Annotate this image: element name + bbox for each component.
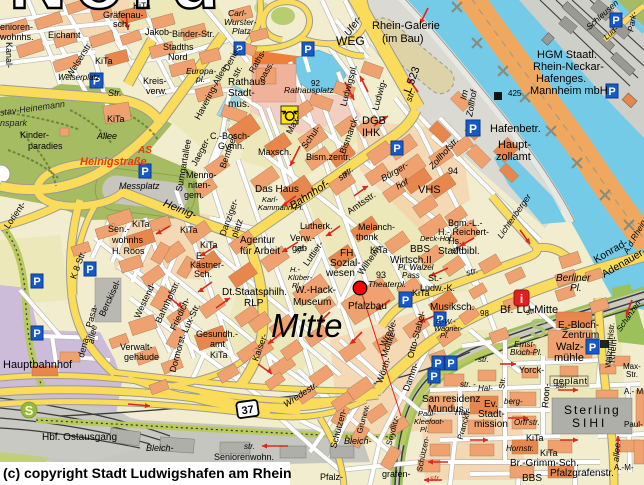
svg-text:zollamt: zollamt — [496, 151, 531, 163]
svg-text:nspark: nspark — [0, 118, 28, 128]
svg-text:Jakob-: Jakob- — [145, 27, 172, 37]
svg-text:A.- M.-: A.- M.- — [624, 387, 644, 396]
svg-text:Eichamt: Eichamt — [48, 30, 81, 40]
svg-text:425: 425 — [508, 89, 522, 98]
svg-text:VHS: VHS — [418, 184, 441, 196]
svg-text:Pfalzbau: Pfalzbau — [348, 301, 387, 312]
svg-text:pl.: pl. — [195, 74, 205, 84]
svg-text:Paul-: Paul- — [624, 420, 643, 429]
svg-text:str.: str. — [478, 355, 489, 364]
svg-text:KiTa: KiTa — [412, 288, 430, 298]
svg-text:Roon-: Roon- — [540, 383, 552, 408]
svg-text:94: 94 — [448, 166, 458, 176]
svg-text:Sen.-: Sen.- — [108, 224, 130, 234]
svg-text:S: S — [25, 403, 34, 418]
svg-text:P: P — [430, 371, 437, 383]
svg-text:Pfalz-: Pfalz- — [320, 472, 343, 482]
svg-text:allee: allee — [611, 442, 623, 462]
svg-text:(im Bau): (im Bau) — [382, 33, 424, 45]
svg-text:Mannheim mbH: Mannheim mbH — [530, 85, 608, 97]
svg-text:KiTa: KiTa — [132, 219, 150, 229]
svg-text:P: P — [304, 44, 311, 56]
svg-text:P: P — [469, 122, 477, 136]
svg-text:Hbf. Ostausgang: Hbf. Ostausgang — [42, 432, 117, 443]
svg-text:Hornstr.: Hornstr. — [506, 444, 534, 453]
svg-text:Das Haus: Das Haus — [255, 184, 299, 195]
svg-text:Hal-: Hal- — [478, 384, 493, 393]
svg-text:Musiksch.: Musiksch. — [430, 302, 474, 313]
svg-text:St.-: St.- — [428, 273, 442, 283]
svg-text:P: P — [86, 264, 93, 276]
svg-text:BBS: BBS — [410, 244, 430, 255]
svg-text:Menno-: Menno- — [186, 170, 217, 180]
svg-text:Kreis-: Kreis- — [143, 76, 167, 86]
svg-text:paradies: paradies — [28, 141, 63, 151]
svg-text:mühle: mühle — [554, 352, 584, 364]
svg-text:sch.: sch. — [113, 19, 130, 29]
svg-text:Allee: Allee — [96, 131, 117, 141]
svg-text:Messplatz: Messplatz — [119, 181, 160, 191]
svg-text:Bloch-Pl.: Bloch-Pl. — [510, 348, 542, 357]
svg-text:W.-Hack-: W.-Hack- — [295, 285, 336, 296]
svg-text:Str.: Str. — [497, 377, 507, 390]
svg-text:KiTa: KiTa — [107, 114, 125, 124]
svg-text:Gesundh.-: Gesundh.- — [196, 329, 238, 339]
svg-text:Zentrum: Zentrum — [562, 330, 599, 341]
svg-text:P: P — [589, 342, 596, 354]
svg-text:mus.: mus. — [228, 99, 250, 110]
svg-text:str.: str. — [244, 442, 255, 451]
svg-text:Orff'str.: Orff'str. — [514, 418, 540, 427]
svg-text:Heinigstraße: Heinigstraße — [80, 156, 147, 168]
svg-text:mission: mission — [474, 419, 508, 430]
svg-text:niten-: niten- — [188, 180, 211, 190]
svg-text:KiTa: KiTa — [180, 225, 198, 235]
svg-text:Pl.: Pl. — [420, 425, 429, 434]
svg-text:P: P — [33, 276, 40, 288]
svg-text:P: P — [434, 358, 441, 370]
svg-text:Melanch-: Melanch- — [358, 222, 395, 232]
svg-text:gem.: gem. — [184, 190, 204, 200]
svg-text:Pass: Pass — [402, 271, 420, 280]
svg-text:Platz: Platz — [232, 26, 252, 36]
svg-text:Sterling: Sterling — [564, 403, 621, 417]
svg-text:P: P — [447, 358, 454, 370]
svg-text:Stadths: Stadths — [163, 42, 194, 52]
svg-text:Rathaus: Rathaus — [228, 77, 265, 88]
svg-text:Binder-Str.: Binder-Str. — [172, 29, 215, 39]
svg-text:wohnhs.: wohnhs. — [0, 32, 34, 42]
svg-text:Hafenbetr.: Hafenbetr. — [490, 123, 541, 135]
svg-text:Str.: Str. — [626, 370, 638, 379]
svg-text:AS: AS — [137, 145, 152, 156]
svg-text:Museum: Museum — [293, 297, 331, 308]
svg-text:Stadt-: Stadt- — [228, 88, 255, 99]
svg-text:H. Roos: H. Roos — [112, 246, 145, 256]
svg-text:Kleefoot-: Kleefoot- — [414, 417, 445, 426]
svg-text:Kanal-: Kanal- — [4, 42, 14, 68]
svg-text:KiTa: KiTa — [210, 350, 228, 360]
svg-text:Lutherk.: Lutherk. — [300, 221, 333, 231]
svg-text:für Arbeit: für Arbeit — [240, 246, 280, 257]
svg-text:P: P — [608, 86, 615, 98]
svg-text:KiTa: KiTa — [200, 240, 218, 250]
svg-text:Hal-: Hal- — [455, 408, 470, 417]
svg-text:enioren-: enioren- — [0, 22, 33, 32]
svg-text:P: P — [33, 328, 40, 340]
svg-text:Pl.: Pl. — [440, 331, 449, 340]
svg-text:Welserplatz: Welserplatz — [58, 73, 100, 82]
svg-text:Pfalzgrafenstr.: Pfalzgrafenstr. — [550, 468, 614, 479]
svg-text:Pl.: Pl. — [570, 283, 582, 294]
svg-text:IHK: IHK — [362, 127, 381, 139]
svg-text:Rathausplatz: Rathausplatz — [284, 85, 334, 95]
svg-text:Bleich-: Bleich- — [146, 443, 174, 453]
svg-text:37: 37 — [241, 404, 255, 418]
svg-text:92: 92 — [311, 79, 320, 88]
svg-text:gehäude: gehäude — [124, 352, 159, 362]
svg-text:H.- Reichert-: H.- Reichert- — [438, 227, 489, 237]
svg-text:thonk: thonk — [356, 232, 379, 242]
svg-text:wohnhs: wohnhs — [111, 235, 144, 245]
svg-text:S: S — [529, 313, 546, 343]
svg-text:Maxsch.: Maxsch. — [258, 147, 292, 157]
svg-text:Yorck-: Yorck- — [519, 365, 544, 375]
svg-text:Kinder-: Kinder- — [20, 130, 49, 140]
svg-text:Rhein-Galerie: Rhein-Galerie — [372, 20, 440, 32]
svg-text:98: 98 — [480, 309, 489, 318]
svg-text:Agentur: Agentur — [240, 235, 276, 246]
svg-text:Hafenges.: Hafenges. — [536, 73, 586, 85]
svg-text:str.: str. — [556, 381, 567, 390]
svg-text:grafen-: grafen- — [382, 469, 411, 479]
svg-text:DGB: DGB — [362, 115, 386, 127]
svg-text:KiTa: KiTa — [540, 448, 558, 458]
svg-text:Haupt-: Haupt- — [498, 139, 531, 151]
svg-text:Dt.Staatsphilh.: Dt.Staatsphilh. — [222, 287, 287, 298]
svg-text:amt: amt — [210, 339, 226, 349]
svg-text:KiTa: KiTa — [526, 433, 544, 443]
svg-text:KiTa: KiTa — [95, 56, 113, 66]
svg-text:Hauptbahnhof: Hauptbahnhof — [3, 359, 73, 371]
svg-text:Verwalt-: Verwalt- — [120, 342, 153, 352]
svg-text:wesen: wesen — [325, 268, 355, 279]
svg-text:Str.: Str. — [108, 88, 122, 98]
svg-text:SIHI: SIHI — [572, 416, 607, 430]
svg-text:P: P — [402, 295, 409, 307]
svg-text:HGM Staatl.: HGM Staatl. — [537, 49, 597, 61]
svg-text:(c) copyright Stadt Ludwigshaf: (c) copyright Stadt Ludwigshafen am Rhei… — [3, 465, 292, 481]
svg-text:str. -: str. - — [460, 380, 476, 389]
svg-text:Mitte: Mitte — [271, 307, 343, 344]
svg-text:Seniorenwohn.: Seniorenwohn. — [214, 452, 274, 462]
svg-text:Bleich-: Bleich- — [344, 436, 372, 446]
svg-text:berg-: berg- — [504, 397, 523, 406]
svg-text:str.: str. — [430, 474, 441, 483]
svg-text:Nord: Nord — [168, 52, 188, 62]
svg-text:P: P — [393, 143, 400, 155]
svg-text:verw.: verw. — [146, 86, 167, 96]
svg-text:A.-M-: A.-M- — [614, 463, 634, 472]
svg-text:RLP: RLP — [244, 298, 264, 309]
svg-text:Theaterpl.: Theaterpl. — [368, 279, 406, 289]
svg-text:Rhein-Neckar-: Rhein-Neckar- — [533, 61, 604, 73]
svg-text:Sch.: Sch. — [194, 269, 212, 279]
svg-text:BBS: BBS — [522, 473, 542, 484]
